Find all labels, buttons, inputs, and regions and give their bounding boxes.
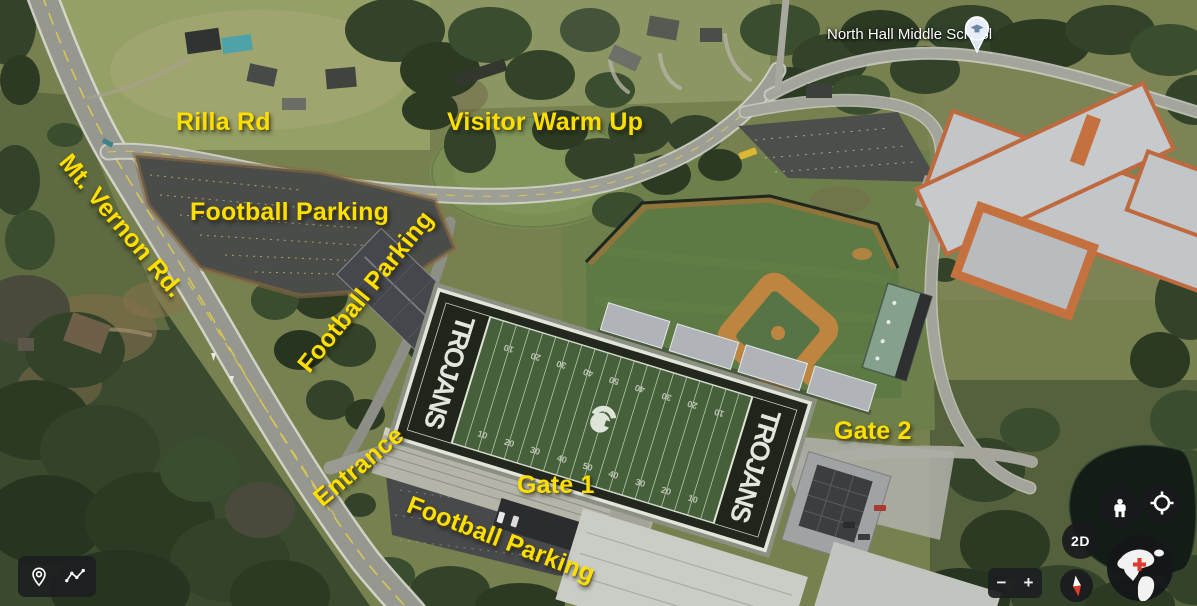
measure-icon [64, 566, 86, 588]
my-location-button[interactable] [1142, 483, 1182, 523]
annotation-visitor-warm-up: Visitor Warm Up [447, 110, 643, 135]
zoom-controls: − + [988, 568, 1042, 598]
pegman-button[interactable] [1099, 487, 1141, 529]
globe-icon [1107, 535, 1173, 601]
location-pin-button[interactable] [24, 562, 54, 592]
compass-icon [1065, 574, 1089, 598]
satellite-imagery[interactable]: TROJANS TROJANS 10 20 30 40 50 40 30 20 … [0, 0, 1197, 606]
2d-view-button[interactable]: 2D [1062, 522, 1099, 559]
my-location-icon [1149, 490, 1175, 516]
map-toolbar [18, 556, 96, 597]
zoom-in-button[interactable]: + [1015, 568, 1042, 598]
annotation-gate-2: Gate 2 [834, 419, 912, 444]
compass-button[interactable] [1060, 569, 1093, 602]
annotation-gate-1: Gate 1 [517, 473, 595, 498]
zoom-out-button[interactable]: − [988, 568, 1015, 598]
measure-button[interactable] [60, 562, 90, 592]
location-pin-icon [28, 566, 50, 588]
poi-pin-icon[interactable] [963, 16, 991, 54]
pegman-icon [1109, 497, 1131, 519]
annotation-football-parking-main: Football Parking [190, 200, 389, 225]
annotation-rilla-rd: Rilla Rd [176, 110, 271, 135]
google-earth-viewport: TROJANS TROJANS 10 20 30 40 50 40 30 20 … [0, 0, 1197, 606]
globe-button[interactable] [1107, 535, 1173, 601]
